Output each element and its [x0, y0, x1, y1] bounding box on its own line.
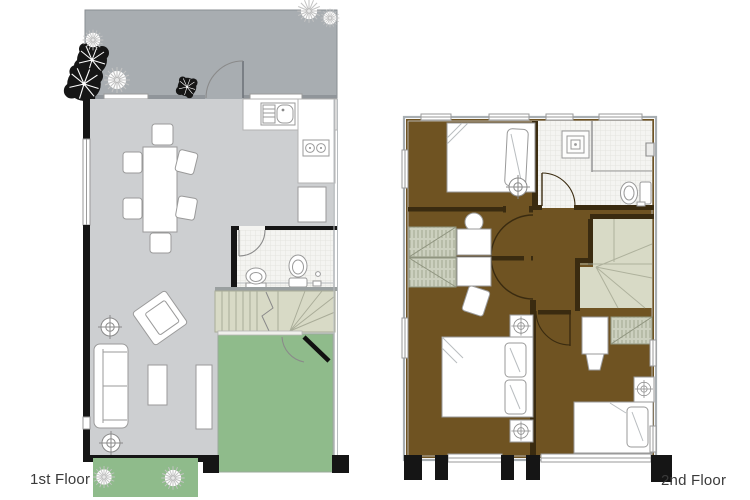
coffee-table	[148, 365, 167, 405]
desk	[457, 257, 491, 286]
second-floor-label: 2nd Floor	[661, 472, 726, 489]
floorplan-canvas: 1st Floor 2nd Floor	[0, 0, 750, 500]
double-bed	[442, 337, 533, 417]
bathroom-sink-icon	[246, 268, 266, 288]
dining-chair	[123, 152, 142, 173]
column	[435, 455, 448, 480]
wardrobe	[409, 227, 456, 287]
staircase-1f	[215, 287, 337, 332]
dining-chair	[150, 233, 171, 253]
dining-chair	[175, 196, 198, 221]
bed	[574, 402, 653, 453]
column	[332, 455, 349, 473]
dining-chair	[123, 198, 142, 219]
dining-chair	[152, 124, 173, 145]
tv-console	[196, 365, 212, 429]
column	[203, 455, 219, 473]
water-heater-icon	[646, 143, 654, 156]
desk-chair	[465, 213, 483, 231]
kitchen-sink-icon	[261, 103, 295, 125]
floorplan-drawing	[0, 0, 750, 500]
sofa	[94, 344, 128, 428]
bathroom-2f	[532, 121, 654, 210]
column	[526, 455, 540, 480]
bathroom-1f	[231, 226, 337, 290]
toilet-icon	[289, 255, 307, 287]
floor-drain-icon	[313, 281, 321, 286]
column	[501, 455, 514, 480]
first-floor-plan	[64, 0, 349, 497]
front-porch-strip	[93, 458, 198, 497]
tap-icon	[316, 272, 321, 277]
first-floor-label: 1st Floor	[30, 471, 90, 488]
fridge-icon	[298, 187, 326, 222]
floor-drain-icon	[637, 202, 645, 206]
second-floor-plan	[402, 114, 672, 482]
desk	[457, 229, 491, 255]
column	[404, 455, 422, 480]
shower-icon	[562, 131, 589, 158]
stove-icon	[303, 140, 329, 156]
desk	[582, 317, 608, 354]
garden-room	[218, 331, 333, 472]
dining-table	[143, 147, 177, 232]
